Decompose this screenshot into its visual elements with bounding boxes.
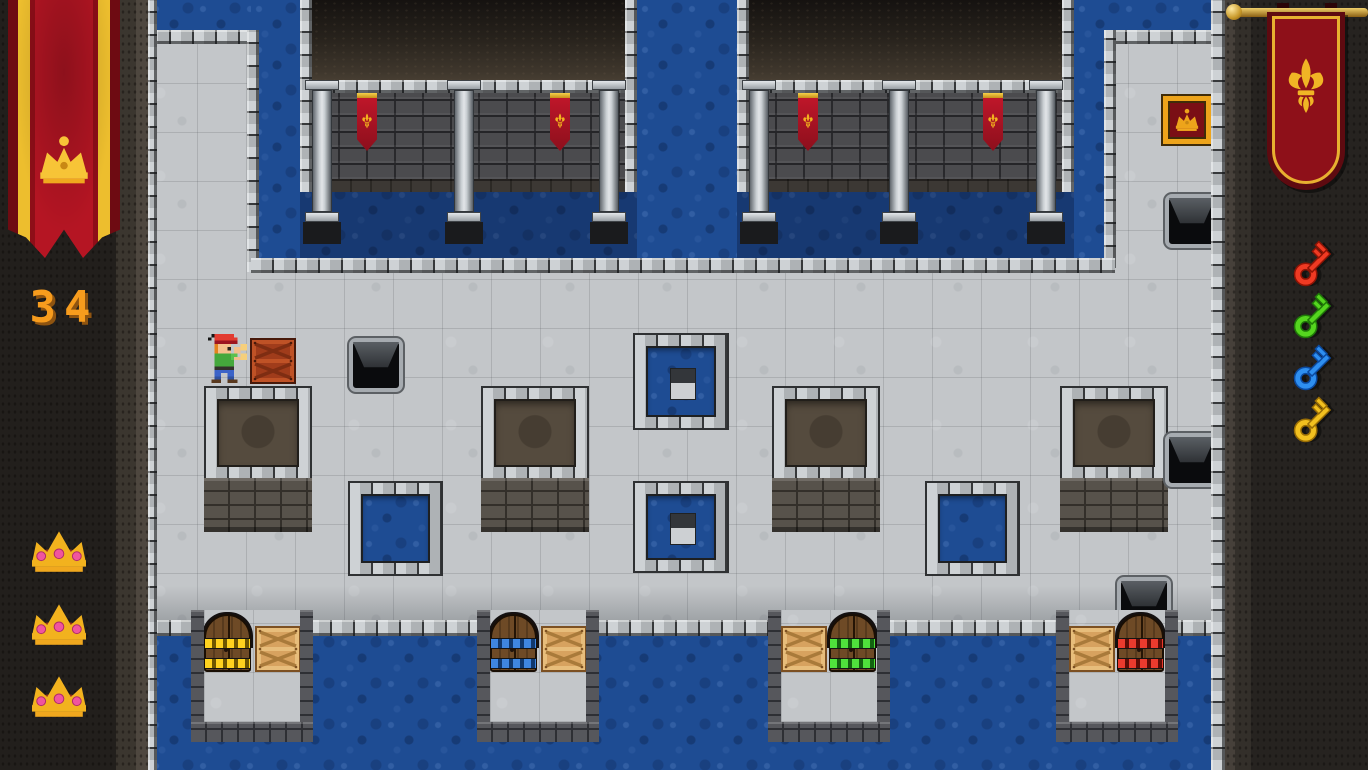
dock-room-red: [1056, 610, 1178, 742]
pillar-shaft: [889, 90, 909, 212]
pillar-plinth: [880, 222, 918, 244]
green-key-icon: [1285, 288, 1347, 344]
door-band-yellow: [205, 658, 250, 669]
dock-crate: [781, 626, 827, 672]
hole-tile-1: [349, 338, 403, 392]
banner-bar: [550, 93, 570, 98]
wall-banner: [798, 93, 818, 151]
dock-room-green: [768, 610, 890, 742]
hall-edge: [1062, 0, 1074, 192]
pillar-plinth: [740, 222, 778, 244]
pillar-plinth: [1027, 222, 1065, 244]
goal-crown-icon: [1172, 107, 1202, 133]
island-pool-lower: [633, 481, 729, 573]
pit-south-wall: [204, 478, 312, 532]
heraldic-banner: [1267, 12, 1345, 190]
pool-water: [361, 494, 430, 563]
hall-interior: [312, 0, 625, 84]
crown-emblem-icon: [32, 132, 96, 188]
fleur-de-lis-icon: [987, 109, 999, 133]
hole-gloss: [1169, 437, 1215, 483]
pillar-base: [742, 212, 776, 222]
dock-crate: [541, 626, 587, 672]
pillar-capital: [447, 80, 481, 90]
pillar-shaft: [312, 90, 332, 212]
banner-inner: [1272, 16, 1340, 184]
right-edge-ledge: [1211, 0, 1225, 770]
game-stage[interactable]: 34: [0, 0, 1368, 770]
ledge: [251, 258, 1115, 273]
blue-key-icon: [1285, 340, 1347, 396]
dock-wall-bottom: [768, 722, 890, 742]
door-knob: [224, 648, 228, 652]
pool-water: [938, 494, 1007, 563]
door-band-red: [1118, 658, 1163, 669]
pillar-capital: [592, 80, 626, 90]
door-band-blue: [491, 638, 536, 649]
door-band-green: [830, 658, 875, 669]
pillar-shaft: [454, 90, 474, 212]
pillar-capital: [305, 80, 339, 90]
ledge: [1104, 30, 1116, 268]
hole-gloss: [353, 342, 399, 388]
castle-hall-left: [300, 0, 637, 248]
dock-wall-bottom: [191, 722, 313, 742]
pit-south-wall: [772, 478, 880, 532]
pillar: [308, 80, 336, 246]
pillar: [885, 80, 913, 246]
pillar-base: [447, 212, 481, 222]
door-band-yellow: [205, 638, 250, 649]
fleur-de-lis-icon: [802, 109, 814, 133]
red-door: [1117, 614, 1164, 672]
pillar-shaft: [599, 90, 619, 212]
pillar: [595, 80, 623, 246]
door-knob: [1137, 648, 1141, 652]
castle-hall-right: [737, 0, 1074, 248]
pillar-base: [305, 212, 339, 222]
pillar-shaft: [1036, 90, 1056, 212]
yellow-door: [204, 614, 251, 672]
pit-floor: [1073, 399, 1155, 467]
blue-door: [490, 614, 537, 672]
pit-south-wall: [1060, 478, 1168, 532]
dock-wall-bottom: [1056, 722, 1178, 742]
fleur-de-lis-icon: [361, 109, 373, 133]
goal-crown-tile: [1163, 96, 1211, 144]
score-banner: [8, 0, 120, 258]
dock-room-yellow: [191, 610, 313, 742]
door-band-red: [1118, 638, 1163, 649]
dock-wall-bottom: [477, 722, 599, 742]
ledge: [1104, 30, 1211, 44]
hall-interior: [749, 0, 1062, 84]
life-crown-icon: [26, 672, 92, 720]
banner-bar: [983, 93, 1003, 98]
yellow-key-icon: [1285, 392, 1347, 448]
island-pool-upper: [633, 333, 729, 430]
pool-island: [670, 513, 696, 545]
ledge: [148, 30, 259, 44]
pillar-base: [882, 212, 916, 222]
life-crown-icon: [26, 527, 92, 575]
wall-banner: [550, 93, 570, 151]
pillar-plinth: [590, 222, 628, 244]
pit-floor: [494, 399, 576, 467]
left-edge-ledge: [148, 0, 157, 770]
dock-crate: [1069, 626, 1115, 672]
pit-floor: [217, 399, 299, 467]
pillar-capital: [882, 80, 916, 90]
banner-bar: [357, 93, 377, 98]
pillar-capital: [1029, 80, 1063, 90]
pillar-capital: [742, 80, 776, 90]
fleur-de-lis-icon: [1284, 57, 1328, 115]
pool-small-1: [348, 481, 443, 576]
moat-center-channel: [637, 0, 737, 272]
pit-2: [481, 386, 589, 480]
pillar: [450, 80, 478, 246]
pit-floor: [785, 399, 867, 467]
door-knob: [510, 648, 514, 652]
green-door: [829, 614, 876, 672]
rod-finial: [1226, 4, 1242, 20]
score-value: 34: [8, 282, 120, 333]
hall-edge: [625, 0, 637, 192]
dock-room-blue: [477, 610, 599, 742]
banner-bar: [798, 93, 818, 98]
hole-gloss: [1169, 198, 1215, 244]
pillar: [1032, 80, 1060, 246]
pool-small-2: [925, 481, 1020, 576]
door-band-blue: [491, 658, 536, 669]
wall-banner: [357, 93, 377, 151]
fleur-de-lis-icon: [554, 109, 566, 133]
pit-south-wall: [481, 478, 589, 532]
life-crown-icon: [26, 600, 92, 648]
level-map: [0, 0, 1368, 770]
pillar-base: [1029, 212, 1063, 222]
door-band-green: [830, 638, 875, 649]
pool-island: [670, 368, 696, 400]
pit-3: [772, 386, 880, 480]
pit-1: [204, 386, 312, 480]
ledge: [247, 30, 259, 272]
door-knob: [849, 648, 853, 652]
wall-banner: [983, 93, 1003, 151]
dock-crate: [255, 626, 301, 672]
pillar-base: [592, 212, 626, 222]
pillar-shaft: [749, 90, 769, 212]
pit-4: [1060, 386, 1168, 480]
pillar-plinth: [445, 222, 483, 244]
pillar: [745, 80, 773, 246]
red-key-icon: [1285, 236, 1347, 292]
pushed-crate: [250, 338, 296, 384]
player-character: [204, 334, 248, 386]
pillar-plinth: [303, 222, 341, 244]
